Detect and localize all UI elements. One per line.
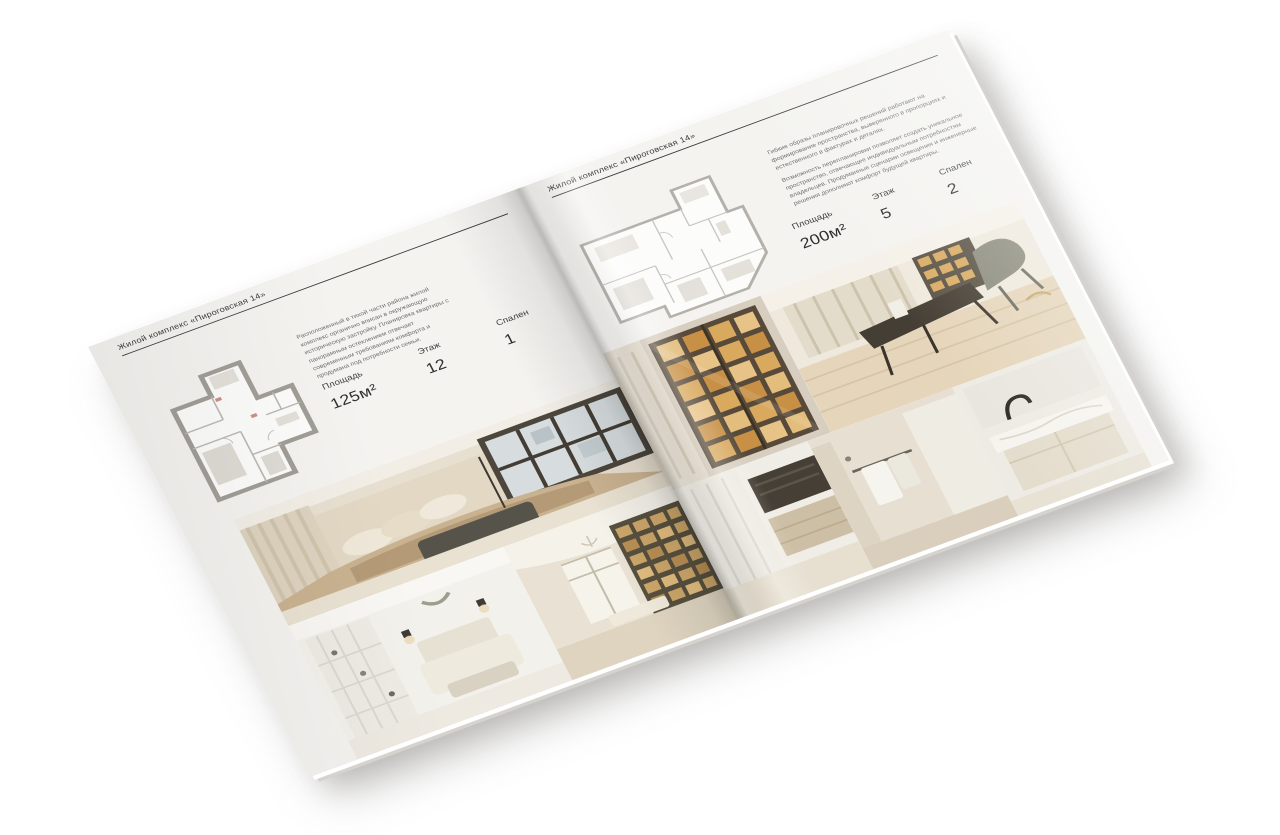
- brochure-mockup-scene: Жилой комплекс «Пироговская 14»: [0, 0, 1280, 835]
- spec-bedrooms: Спален 1: [494, 299, 564, 349]
- spec-floor: Этаж 5: [870, 169, 952, 223]
- spec-bedrooms: Спален 2: [937, 148, 1009, 198]
